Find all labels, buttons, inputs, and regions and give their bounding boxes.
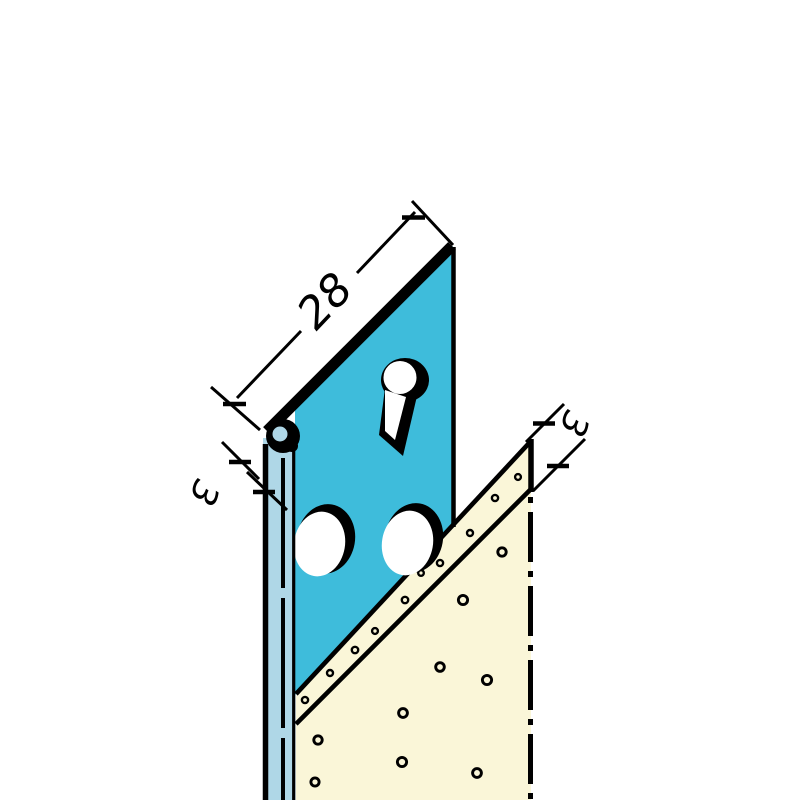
profile-rolled-edge [266, 419, 300, 453]
profile-isometric-drawing: 28 3 3 [0, 0, 800, 800]
technical-drawing-canvas: 28 3 3 [0, 0, 800, 800]
